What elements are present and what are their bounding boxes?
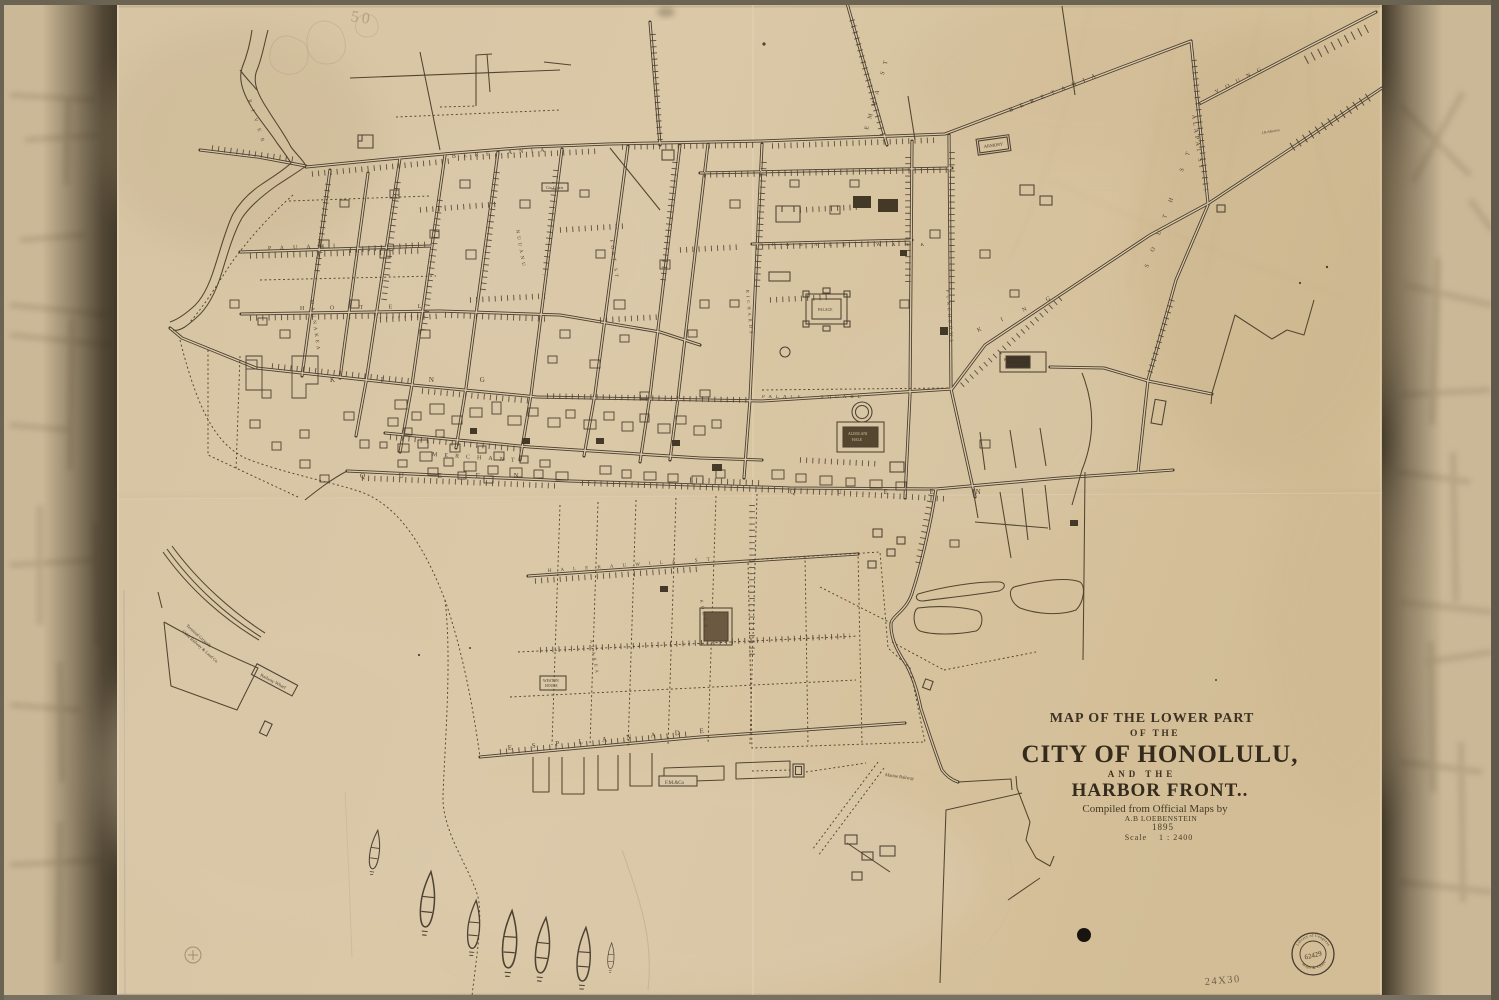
svg-text:PALACE SQUARE: PALACE SQUARE [762, 395, 865, 400]
svg-text:Civ. Courts: Civ. Courts [546, 186, 564, 190]
svg-text:PALACE: PALACE [818, 308, 833, 312]
svg-text:50: 50 [350, 8, 374, 28]
svg-text:OF THE: OF THE [1130, 729, 1180, 739]
svg-text:P A L A C E W A L K: P A L A C E W A L K [772, 243, 929, 248]
svg-text:HARBOR FRONT..: HARBOR FRONT.. [1072, 780, 1249, 801]
svg-text:ALIIOLANI: ALIIOLANI [848, 432, 868, 436]
svg-text:WESTON: WESTON [543, 679, 559, 683]
svg-text:HOUSE: HOUSE [545, 684, 558, 688]
svg-text:MAP OF THE LOWER PART: MAP OF THE LOWER PART [1050, 711, 1255, 726]
svg-text:K I N G: K I N G [330, 376, 507, 384]
svg-text:CITY OF HONOLULU,: CITY OF HONOLULU, [1022, 741, 1299, 768]
svg-text:AND THE: AND THE [1108, 769, 1177, 779]
svg-text:1895: 1895 [1152, 822, 1174, 832]
svg-text:F.M.&Co: F.M.&Co [665, 781, 685, 786]
svg-text:Q U E E N: Q U E E N [360, 472, 535, 480]
svg-text:Q U E E N: Q U E E N [790, 488, 1001, 496]
svg-text:HALE: HALE [852, 438, 863, 442]
svg-text:Scale 1 : 2400: Scale 1 : 2400 [1125, 833, 1194, 842]
svg-text:KAWAIAHAO: KAWAIAHAO [1004, 358, 1028, 362]
svg-text:CHURCH: CHURCH [1007, 363, 1023, 367]
